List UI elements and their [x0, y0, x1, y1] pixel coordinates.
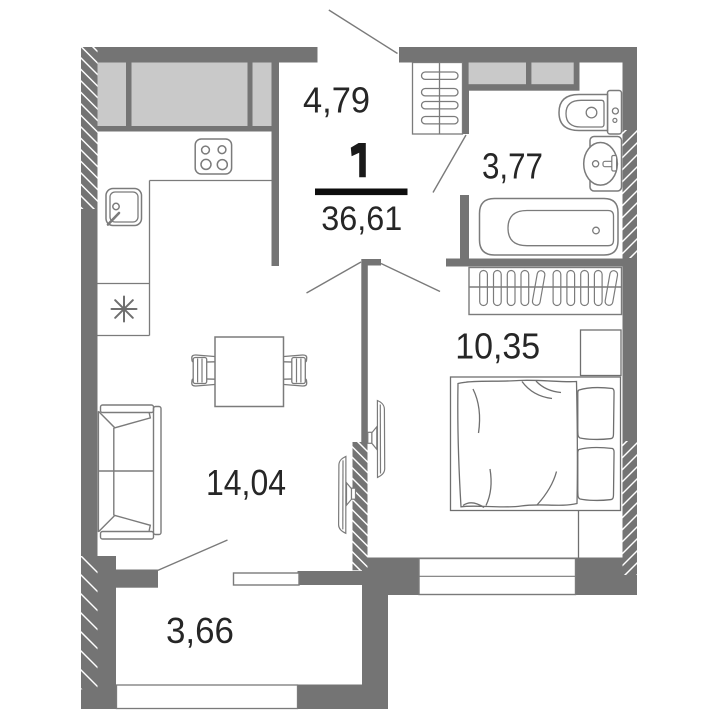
svg-text:3,66: 3,66	[166, 610, 234, 651]
svg-text:14,04: 14,04	[206, 462, 286, 503]
svg-text:4,79: 4,79	[303, 80, 370, 121]
svg-text:10,35: 10,35	[455, 326, 540, 367]
svg-text:3,77: 3,77	[482, 146, 543, 187]
svg-text:36,61: 36,61	[321, 200, 402, 238]
